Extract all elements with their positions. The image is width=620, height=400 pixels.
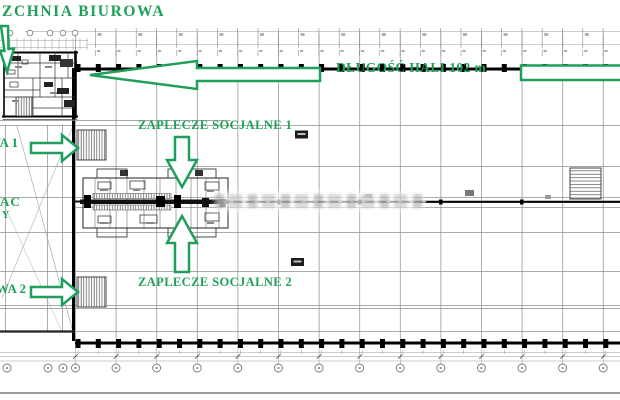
floor-plan-drawing [0, 0, 620, 400]
gate-1-label: WA 1 [0, 135, 18, 151]
social-area-2-label: ZAPLECZE SOCJALNE 2 [138, 275, 292, 290]
gate-2-hatch [77, 277, 106, 307]
floor-plan-canvas: ZCHNIA BIUROWA DŁUGOŚĆ HALI 102 m ZAPLEC… [0, 0, 620, 400]
office-area-label: ZCHNIA BIUROWA [2, 3, 165, 21]
yard-label: AC [0, 194, 21, 210]
hall-length-label: DŁUGOŚĆ HALI 102 m [336, 60, 486, 76]
hall-length-arrow-left [90, 61, 320, 89]
office-staircase [16, 97, 32, 116]
yard-label-2: Y [2, 210, 9, 221]
room-tag [465, 190, 474, 196]
right-dock-hatch [570, 168, 601, 199]
yard-diagonal-line [0, 196, 62, 332]
social-facilities-block [73, 169, 228, 237]
gate-2-arrow-right [31, 279, 78, 305]
hall-center-line [228, 131, 620, 267]
social-area-1-label: ZAPLECZE SOCJALNE 1 [138, 118, 292, 133]
hall-length-bar-right [521, 66, 620, 81]
gate-2-label: WA 2 [0, 281, 26, 297]
gate-1-arrow-right [31, 135, 78, 161]
gate-1-hatch [77, 130, 106, 160]
social-1-arrow-down [167, 137, 197, 187]
social-2-arrow-up [167, 216, 197, 272]
